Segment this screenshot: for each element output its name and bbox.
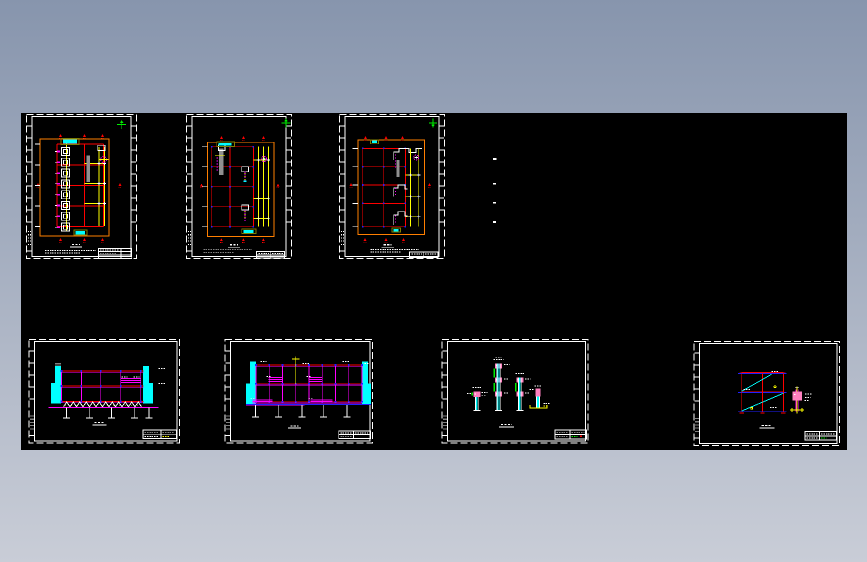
column-detail-2 [493,357,509,410]
north-symbol-icon [117,120,126,129]
sheet-b1-content[interactable] [49,363,177,438]
gusset-detail [790,387,812,414]
riser-detail [242,205,249,221]
column-detail-3 [515,374,531,411]
sheet-t3-frame [340,115,445,259]
model-space-canvas[interactable] [21,113,847,450]
title-block [257,252,285,259]
equipment-block [243,230,253,233]
north-symbol-icon [429,119,437,128]
plan-border [207,142,274,236]
riser-detail [242,167,249,182]
dimension-ticks [202,147,207,227]
stair-detail [269,378,283,382]
title-block [555,430,587,439]
brace-diagonal [742,374,772,391]
column-bar [219,148,223,175]
title-block [143,430,177,439]
equipment-block [372,141,377,144]
riser-detail [394,149,422,178]
dimension-ticks [353,148,359,226]
shear-wall-left [246,362,256,404]
plan-border [358,140,425,234]
shear-wall-right [143,366,153,404]
foundation-columns [66,407,149,417]
dimension-ticks [35,144,40,227]
column-detail-4 [530,386,550,409]
cad-viewer-window: { "viewer": { "background": {"gradient_t… [0,0,867,562]
title-block [339,431,371,438]
sheet-t2-content[interactable] [200,119,291,259]
equipment-block [76,231,85,235]
sheet-b4-content[interactable] [738,372,837,441]
foundation-columns [256,405,348,416]
bay-detail [121,379,141,383]
sheet-t1-content[interactable] [35,120,132,258]
column-detail-1 [467,388,488,411]
sheet-t3-content[interactable] [350,119,438,258]
stair-detail [309,378,323,382]
shear-wall-left [51,366,61,404]
title-block [805,432,837,440]
legend-micro-marks [493,158,497,223]
sheet-b4-frame [694,342,840,446]
equipment-block [63,140,77,144]
equipment-block [394,229,399,232]
sheet-b2-content[interactable] [246,357,371,439]
floor-beams [61,371,144,402]
column-bar [87,155,90,182]
sheet-t1-frame [27,115,137,259]
equipment-block [218,143,231,146]
sheet-b3-content[interactable] [467,357,587,439]
